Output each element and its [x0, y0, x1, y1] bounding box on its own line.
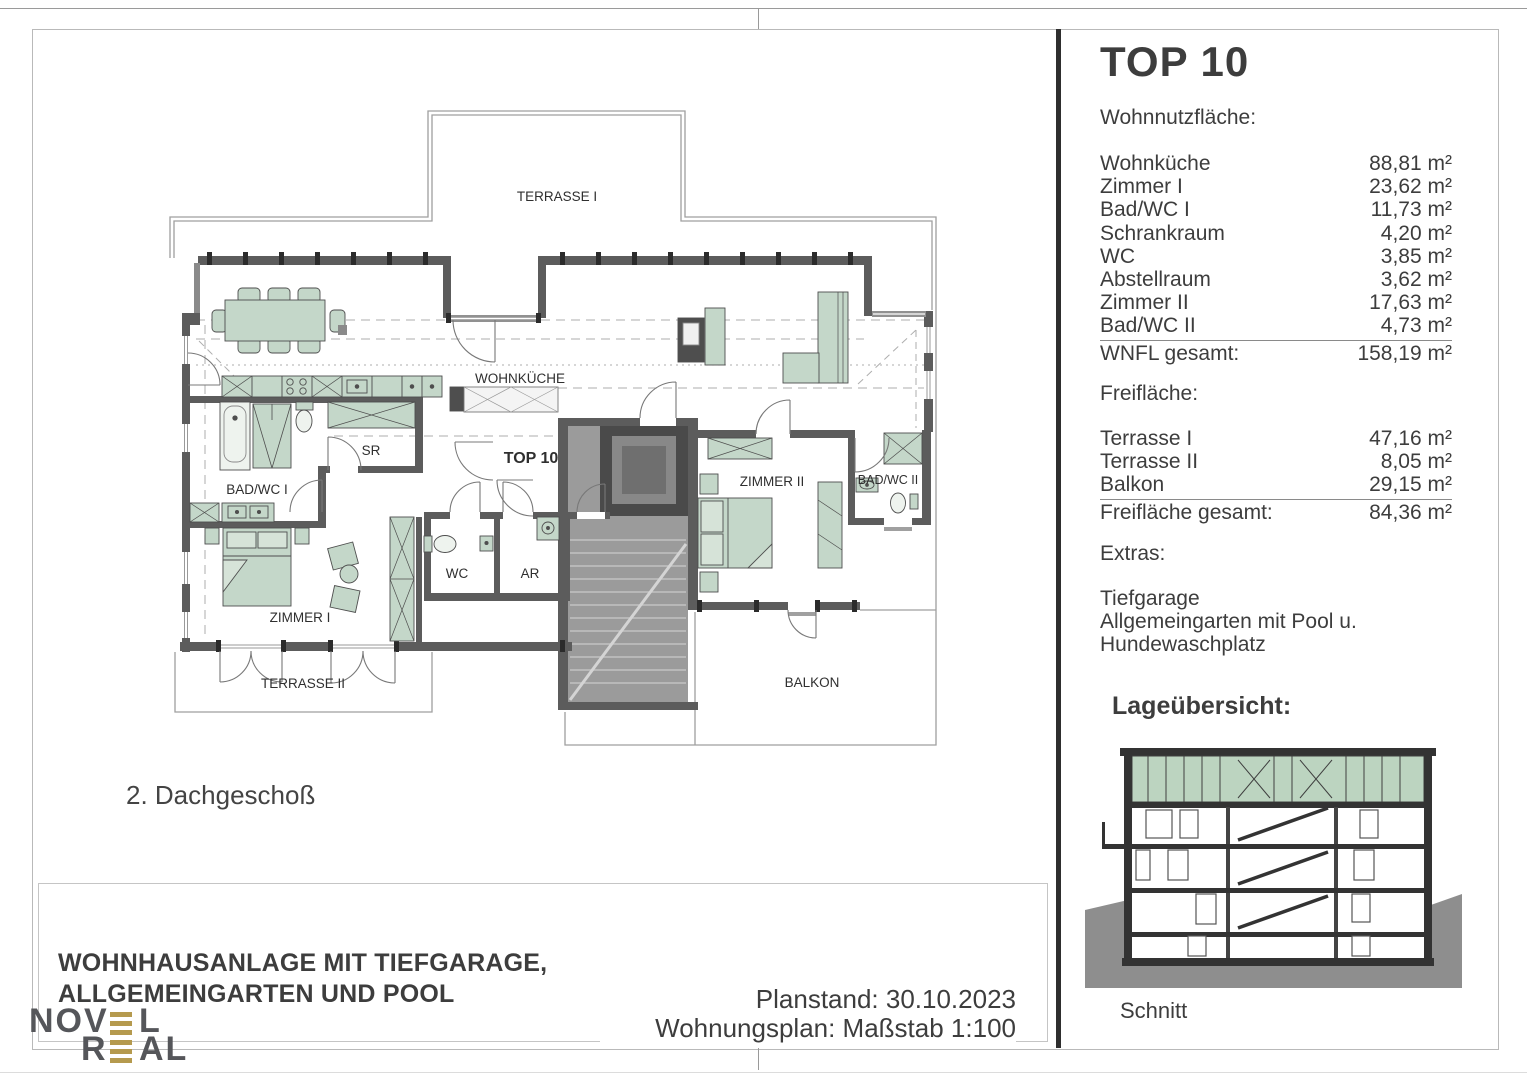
wnfl-header: Wohnnutzfläche: [1100, 106, 1256, 130]
label-wc: WC [446, 566, 469, 581]
tv-board [705, 308, 725, 365]
label-top10: TOP 10 [504, 450, 559, 467]
logo-text: AL [139, 1035, 188, 1063]
frei-total-row: Freifläche gesamt:84,36 m² [1100, 499, 1452, 524]
table-row: Bad/WC I11,73 m² [1100, 198, 1452, 221]
table-row: Schrankraum4,20 m² [1100, 222, 1452, 245]
toilet [296, 410, 312, 432]
label-badwc1: BAD/WC I [226, 482, 288, 497]
planstand: Planstand: 30.10.2023 [600, 985, 1016, 1014]
table-row: Abstellraum3,62 m² [1100, 268, 1452, 291]
toilet2 [891, 493, 906, 513]
kitchen-island-end [450, 387, 464, 411]
label-terrasse2: TERRASSE II [261, 676, 345, 691]
pendant-light [338, 325, 347, 335]
elevator-car-inner [622, 446, 666, 494]
cabinet-zimmer2 [818, 482, 842, 568]
plan-meta: Planstand: 30.10.2023 Wohnungsplan: Maßs… [600, 985, 1016, 1043]
project-title-line1: WOHNHAUSANLAGE MIT TIEFGARAGE, [58, 948, 547, 979]
wnfl-table: Wohnküche88,81 m² Zimmer I23,62 m² Bad/W… [1100, 152, 1452, 365]
logo-e-bars [110, 1012, 132, 1035]
extras-list: Tiefgarage Allgemeingarten mit Pool u. H… [1100, 587, 1357, 657]
label-wohnkueche: WOHNKÜCHE [475, 371, 565, 386]
table-row: Balkon29,15 m² [1100, 473, 1452, 496]
stair-core [568, 424, 688, 702]
table-row: WC3,85 m² [1100, 245, 1452, 268]
wc-toilet [434, 536, 456, 553]
extras-item: Hundewaschplatz [1100, 633, 1357, 656]
side-table [340, 565, 358, 583]
floor-label: 2. Dachgeschoß [126, 780, 315, 811]
roof-slab [1120, 748, 1436, 756]
kitchen-island [464, 387, 558, 412]
label-ar: AR [521, 566, 540, 581]
section-drawing [1085, 748, 1462, 988]
label-terrasse1: TERRASSE I [517, 189, 597, 204]
extras-item: Allgemeingarten mit Pool u. [1100, 610, 1357, 633]
project-title-line2: ALLGEMEINGARTEN UND POOL [58, 979, 547, 1010]
frei-table: Terrasse I47,16 m² Terrasse II8,05 m² Ba… [1100, 427, 1452, 524]
logo-text: R [81, 1035, 108, 1063]
dining-table [225, 300, 325, 341]
armchair [328, 542, 359, 570]
label-sr: SR [362, 443, 381, 458]
label-badwc2: BAD/WC II [858, 473, 918, 487]
table-row: Bad/WC II4,73 m² [1100, 314, 1452, 337]
section-stairs [1238, 808, 1328, 928]
sofa [818, 292, 848, 383]
plan-sheet: TERRASSE I WOHNKÜCHE TOP 10 BAD/WC I SR … [0, 0, 1527, 1080]
table-row: Terrasse I47,16 m² [1100, 427, 1452, 450]
kitchen-counter [222, 376, 442, 397]
extras-header: Extras: [1100, 542, 1165, 566]
lage-header: Lageübersicht: [1112, 692, 1291, 721]
attic-glazing [1132, 756, 1424, 802]
section-balcony [1102, 844, 1126, 849]
frei-header: Freifläche: [1100, 382, 1198, 406]
schnitt-label: Schnitt [1120, 998, 1187, 1024]
label-zimmer1: ZIMMER I [270, 610, 331, 625]
label-zimmer2: ZIMMER II [740, 474, 805, 489]
project-title: WOHNHAUSANLAGE MIT TIEFGARAGE, ALLGEMEIN… [58, 948, 547, 1010]
extras-item: Tiefgarage [1100, 587, 1357, 610]
nightstand [205, 528, 219, 544]
table-row: Terrasse II8,05 m² [1100, 450, 1452, 473]
unit-title: TOP 10 [1100, 38, 1249, 86]
label-balkon: BALKON [785, 675, 840, 690]
wnfl-total-row: WNFL gesamt:158,19 m² [1100, 340, 1452, 365]
table-row: Wohnküche88,81 m² [1100, 152, 1452, 175]
table-row: Zimmer II17,63 m² [1100, 291, 1452, 314]
logo-e-bars [110, 1040, 132, 1063]
table-row: Zimmer I23,62 m² [1100, 175, 1452, 198]
massstab: Wohnungsplan: Maßstab 1:100 [600, 1014, 1016, 1043]
